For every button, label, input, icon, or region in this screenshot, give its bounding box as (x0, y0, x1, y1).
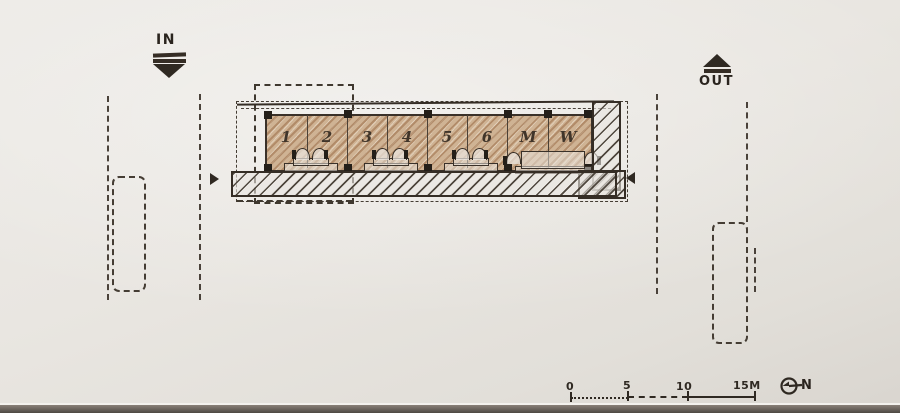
scale-tick (687, 391, 689, 401)
door-leaf (324, 150, 328, 159)
in-arrow-icon (153, 64, 185, 78)
photo-edge-shadow (0, 405, 900, 413)
road-edge-line (199, 94, 201, 300)
north-label: N (801, 378, 812, 393)
parking-stall (112, 176, 146, 292)
roof-overhang-dashed-line (241, 108, 611, 109)
column-marker (504, 110, 512, 118)
room-label-2: 2 (307, 128, 347, 146)
scale-tick-label: 10 (676, 380, 692, 393)
scale-bar-segment (688, 396, 755, 398)
road-edge-line (746, 102, 748, 222)
room-label-3: 3 (347, 128, 387, 146)
parking-stall (712, 222, 748, 344)
site-plan-sketch-photo: IN OUT 1 2 3 4 5 6 M W (0, 0, 900, 413)
in-arrow-icon (153, 52, 186, 57)
column-marker (424, 110, 432, 118)
room-label-5: 5 (427, 128, 467, 146)
in-label: IN (156, 32, 176, 48)
entry-arrow-icon (210, 173, 219, 185)
scale-bar-segment (571, 397, 628, 399)
walkway-dashed-edge (237, 200, 352, 202)
in-arrow-icon (153, 59, 186, 63)
door-leaf (452, 150, 456, 159)
road-edge-line (656, 94, 658, 294)
room-label-6: 6 (467, 128, 507, 146)
road-edge-line (754, 248, 756, 292)
door-leaf (484, 150, 488, 159)
column-marker (544, 110, 552, 118)
room-label-men: M (508, 128, 548, 146)
out-label: OUT (699, 74, 734, 89)
column-marker (344, 110, 352, 118)
door-leaf (292, 150, 296, 159)
column-marker (264, 111, 272, 119)
room-label-4: 4 (387, 128, 427, 146)
room-label-1: 1 (266, 128, 306, 146)
scale-tick (627, 391, 629, 401)
walkway (231, 171, 617, 197)
column-marker (584, 110, 592, 118)
room-label-women: W (548, 128, 588, 146)
door-leaf (372, 150, 376, 159)
scale-tick (570, 392, 572, 402)
mw-entry-ramp (521, 151, 585, 169)
door-leaf (404, 150, 408, 159)
door-leaf (503, 156, 507, 165)
road-edge-line (107, 96, 109, 300)
out-arrow-icon (703, 54, 731, 67)
out-arrow-icon (704, 69, 731, 73)
scale-bar-segment (628, 396, 688, 398)
scale-tick-label: 15M (733, 379, 761, 392)
scale-tick (754, 391, 756, 401)
